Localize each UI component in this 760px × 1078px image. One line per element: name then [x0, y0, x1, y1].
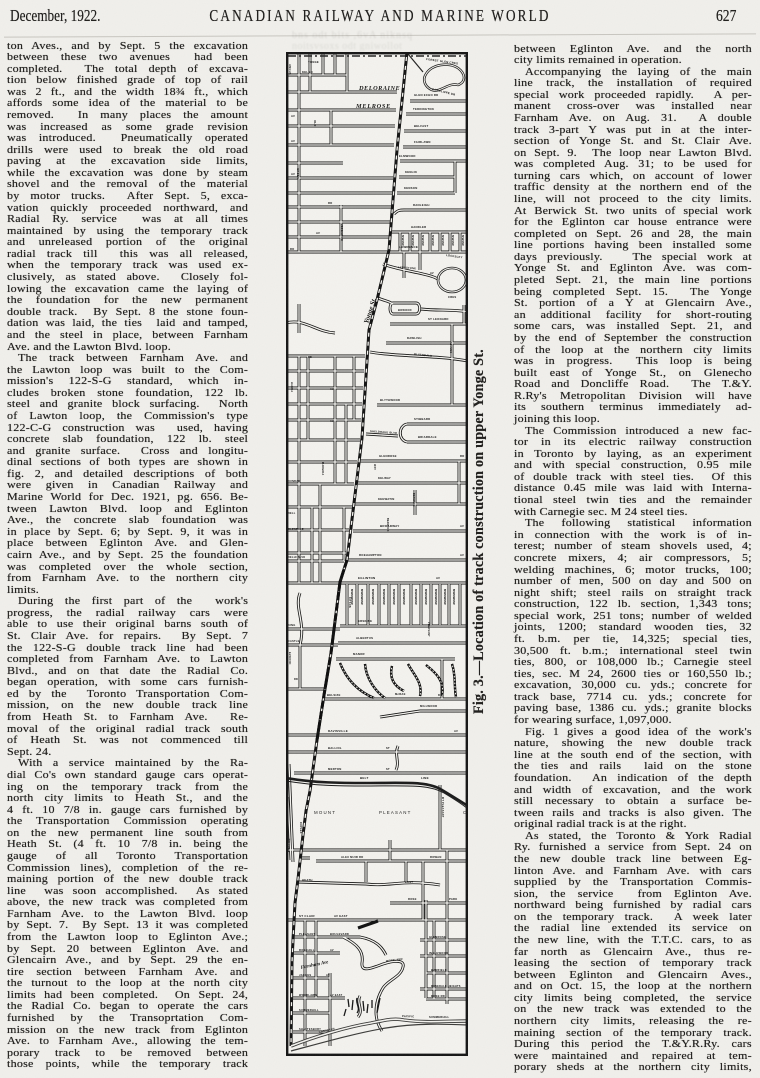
svg-text:MWMW: MWMW [441, 235, 445, 246]
svg-text:ST CLAIR: ST CLAIR [299, 914, 315, 918]
svg-text:MWMW: MWMW [431, 235, 435, 246]
svg-text:MWMWMW: MWMWMW [402, 589, 406, 605]
svg-text:KING: KING [288, 623, 295, 627]
svg-text:ST IVES: ST IVES [449, 342, 452, 353]
svg-text:AV: AV [460, 553, 464, 557]
svg-text:AV: AV [436, 576, 440, 580]
svg-text:WAY: WAY [373, 464, 376, 470]
svg-text:ST: ST [386, 746, 390, 750]
svg-text:BAMFIELD: BAMFIELD [431, 968, 447, 972]
svg-text:AV: AV [326, 974, 330, 977]
svg-text:PLEASANT: PLEASANT [379, 810, 412, 815]
svg-text:ROSEHILL: ROSEHILL [299, 948, 315, 952]
svg-text:BELFAST: BELFAST [414, 124, 429, 128]
svg-text:DAVISVILLE: DAVISVILLE [328, 729, 348, 733]
svg-text:CRES: CRES [448, 295, 456, 299]
svg-text:GLENROSE: GLENROSE [379, 454, 397, 458]
svg-text:ROSE RD: ROSE RD [431, 994, 445, 998]
svg-text:OLD: OLD [313, 120, 317, 126]
svg-text:DR: DR [438, 693, 442, 697]
svg-text:BOWOOD: BOWOOD [398, 308, 412, 312]
svg-text:AV EAST: AV EAST [334, 914, 348, 918]
svg-text:GLENROSE: GLENROSE [429, 935, 446, 939]
svg-text:MWMWMW: MWMWMW [443, 589, 447, 605]
svg-text:ST LEONARD: ST LEONARD [428, 317, 449, 321]
svg-text:YONGE: YONGE [308, 60, 319, 64]
svg-text:ELWOOD: ELWOOD [288, 652, 291, 665]
svg-text:MWMWMW: MWMWMW [350, 589, 354, 605]
svg-text:MWMWMW: MWMWMW [360, 589, 364, 605]
svg-text:BALLIOL: BALLIOL [328, 746, 342, 750]
svg-text:LINE: LINE [421, 776, 429, 780]
svg-text:BOULEVARD: BOULEVARD [330, 932, 349, 936]
svg-text:PACIFIC: PACIFIC [402, 1014, 414, 1018]
svg-text:BELT: BELT [360, 776, 369, 780]
svg-text:AV: AV [430, 271, 434, 275]
svg-text:ROSE: ROSE [408, 897, 417, 901]
svg-text:AV: AV [291, 114, 295, 118]
svg-text:ALEX MUIR RD: ALEX MUIR RD [341, 855, 363, 859]
svg-text:DELORAINE: DELORAINE [358, 85, 400, 92]
svg-text:MWMW: MWMW [451, 235, 455, 246]
svg-text:MERTON: MERTON [328, 767, 342, 771]
svg-text:KENSON: KENSON [404, 186, 417, 190]
svg-text:MELROSE: MELROSE [355, 103, 391, 110]
svg-text:MWMWMW: MWMWMW [424, 589, 428, 605]
svg-text:FAIRLAWN: FAIRLAWN [414, 140, 431, 144]
svg-text:EAST: EAST [405, 880, 413, 884]
svg-text:MILLWOOD: MILLWOOD [420, 704, 437, 708]
svg-text:DUNBAR: DUNBAR [288, 480, 300, 483]
svg-text:AV: AV [291, 139, 295, 143]
svg-text:TEDDINGTON: TEDDINGTON [413, 107, 434, 111]
svg-text:ROEHAMPTON: ROEHAMPTON [359, 553, 382, 557]
svg-text:MWMWMW: MWMWMW [371, 589, 375, 605]
svg-text:AV: AV [316, 231, 320, 235]
svg-text:BLYTHWOOD: BLYTHWOOD [380, 398, 400, 402]
svg-text:GLENDALE: GLENDALE [288, 528, 304, 531]
svg-text:RD: RD [328, 201, 332, 205]
svg-text:ST: ST [386, 767, 390, 771]
svg-text:SUMMERHILL: SUMMERHILL [429, 1015, 450, 1019]
svg-text:PLEASANT: PLEASANT [427, 622, 430, 637]
svg-text:AV: AV [330, 388, 334, 391]
svg-text:MWMWMW: MWMWMW [434, 589, 438, 605]
svg-text:HANNA: HANNA [290, 382, 293, 392]
svg-text:DELHI BLVD: DELHI BLVD [288, 556, 305, 559]
svg-text:RANLEIGH: RANLEIGH [413, 203, 430, 207]
svg-text:MOUNT: MOUNT [314, 810, 336, 815]
svg-text:DUPLEX: DUPLEX [299, 822, 302, 834]
svg-text:MWMWMW: MWMWMW [414, 589, 418, 605]
svg-text:BERWICK: BERWICK [412, 493, 415, 507]
svg-text:JEDBURGH: JEDBURGH [340, 224, 344, 241]
svg-text:KELWAY: KELWAY [378, 476, 391, 480]
svg-text:HANDLER: HANDLER [411, 225, 426, 229]
svg-text:AV: AV [460, 524, 464, 528]
svg-text:MWMW: MWMW [401, 235, 405, 246]
svg-text:HEATH: HEATH [302, 878, 313, 882]
svg-text:MWMW: MWMW [411, 235, 415, 246]
svg-text:AV: AV [291, 172, 295, 176]
svg-text:KENLIN: KENLIN [405, 170, 417, 174]
svg-text:MWMWMW: MWMWMW [392, 589, 396, 605]
svg-text:MWMWMW: MWMWMW [382, 589, 386, 605]
svg-text:RD: RD [290, 247, 294, 251]
svg-text:AV: AV [330, 420, 334, 423]
svg-text:ALBERTUS: ALBERTUS [356, 636, 373, 640]
svg-text:MWMW: MWMW [461, 235, 465, 246]
svg-text:MANOR: MANOR [353, 652, 365, 656]
svg-text:ERSKINE: ERSKINE [358, 619, 372, 623]
svg-text:GREER: GREER [296, 168, 300, 179]
svg-text:PARK: PARK [449, 897, 457, 901]
svg-text:KELSO: KELSO [302, 70, 313, 74]
svg-text:EGLINTON: EGLINTON [358, 576, 375, 580]
svg-text:MT PLEASANT: MT PLEASANT [441, 797, 444, 818]
svg-text:MWMWMW: MWMWMW [452, 589, 456, 605]
svg-text:DELL: DELL [288, 512, 296, 515]
svg-text:RD: RD [294, 678, 298, 681]
svg-text:McRAE: McRAE [395, 692, 406, 696]
svg-text:BERWICK: BERWICK [386, 518, 389, 532]
svg-text:BELSIZE: BELSIZE [327, 693, 341, 697]
svg-text:BRIARDALE: BRIARDALE [418, 435, 437, 439]
svg-text:ROSEDALE HEIGHTS: ROSEDALE HEIGHTS [431, 985, 461, 988]
svg-text:INGLEWOOD: INGLEWOOD [429, 951, 448, 955]
svg-text:MADEIRA: MADEIRA [321, 462, 324, 475]
svg-text:KEEWATIN: KEEWATIN [378, 497, 395, 501]
svg-text:GLEN ECHO RD: GLEN ECHO RD [414, 93, 438, 97]
svg-text:AV: AV [454, 729, 458, 733]
svg-text:AV: AV [330, 949, 334, 952]
svg-text:SUMMERHILL: SUMMERHILL [299, 1008, 319, 1012]
svg-text:DAWLISH: DAWLISH [407, 336, 422, 340]
svg-text:RD: RD [460, 454, 464, 458]
svg-text:WOODLAWN: WOODLAWN [299, 993, 317, 997]
svg-text:AV EAST: AV EAST [330, 994, 343, 997]
svg-text:STIBBARD: STIBBARD [414, 417, 430, 421]
svg-text:MWMW: MWMW [421, 235, 425, 246]
svg-text:ANGUS: ANGUS [288, 64, 292, 75]
svg-text:ROWAN: ROWAN [430, 855, 442, 859]
svg-text:PLEASANT: PLEASANT [299, 932, 316, 936]
svg-text:ELMWOOD: ELMWOOD [399, 154, 416, 158]
svg-text:JACKES: JACKES [299, 973, 311, 977]
svg-text:RD: RD [308, 356, 312, 359]
svg-text:CASTLE: CASTLE [288, 640, 300, 643]
